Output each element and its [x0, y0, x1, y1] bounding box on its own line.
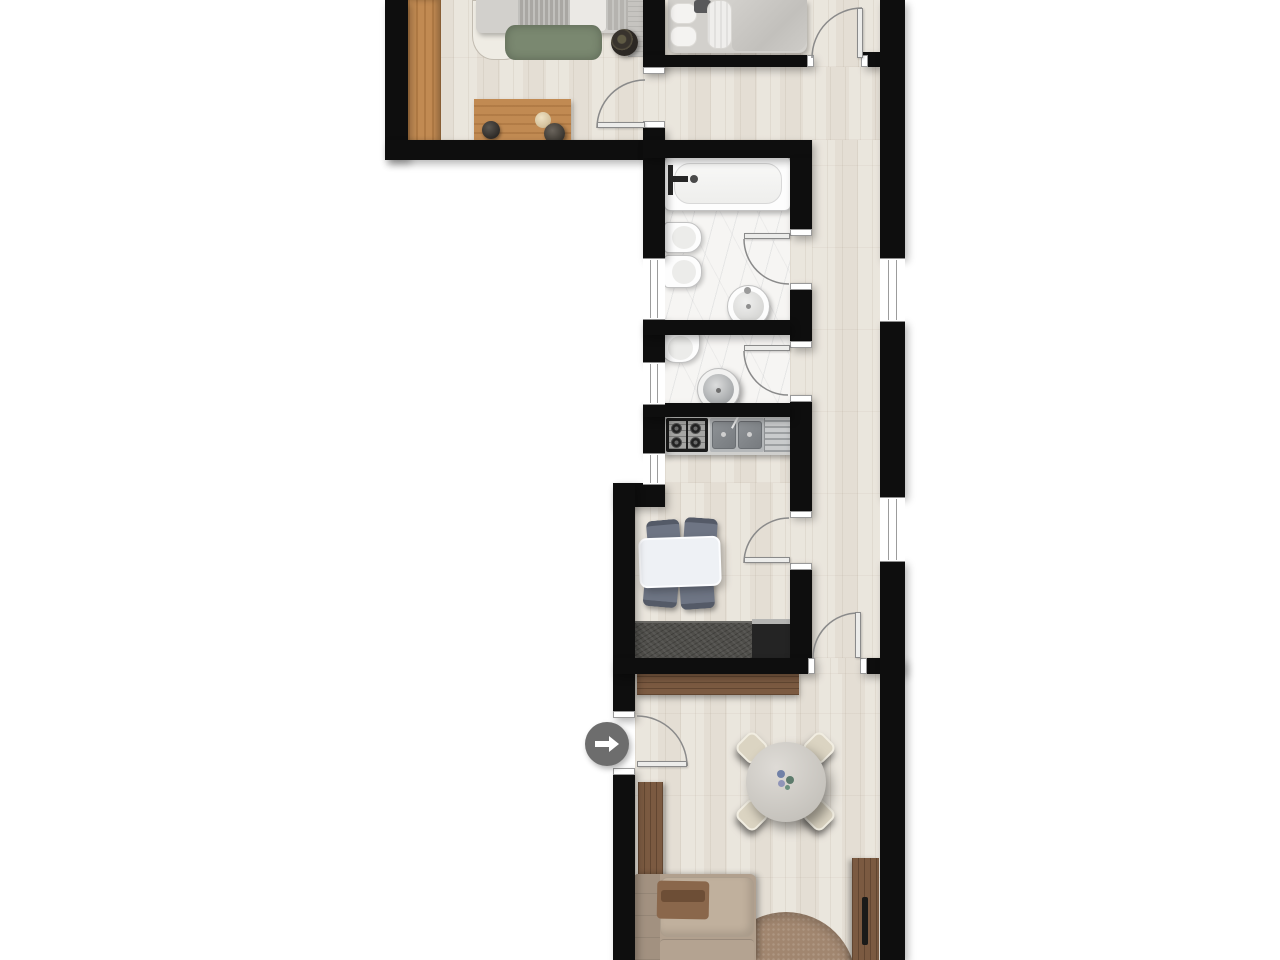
wall-bath-right-b: [790, 283, 812, 348]
jamb-bedroom1-bottom: [643, 121, 665, 128]
sofa-seat-cushion: [660, 939, 754, 960]
tall-cabinet: [638, 782, 663, 877]
floor-hall-upper: [665, 67, 880, 140]
dark-stone-counter: [635, 621, 752, 658]
burner-4: [690, 437, 701, 448]
wall-bedroom1-left: [385, 0, 408, 160]
bed2-pillow-top: [670, 3, 697, 24]
floor-patch-living-door: [815, 658, 860, 674]
bed2-duvet: [732, 0, 807, 51]
window-wc: [643, 362, 665, 405]
bathtub-basin: [674, 163, 782, 204]
dining-table: [638, 536, 722, 589]
jamb-living-left: [808, 658, 815, 674]
flower-mint: [785, 785, 790, 790]
sofa-back: [634, 874, 660, 960]
jamb-entrance-top: [613, 711, 635, 718]
bidet-bathroom-bowl: [672, 260, 696, 284]
floor-hallway: [812, 140, 880, 658]
floor-plan-canvas: [0, 0, 1280, 960]
pedestal-sink-wc-drain: [716, 388, 721, 393]
window-kitchen: [643, 453, 665, 485]
jamb-bathroom-bottom: [790, 283, 812, 290]
jamb-wc-bottom: [790, 395, 812, 402]
flower-lilac: [778, 780, 785, 787]
bed2-rolled-blanket: [707, 0, 732, 49]
bathtub-faucet-arm: [668, 176, 688, 182]
door-leaf-living: [855, 612, 861, 658]
flower-blue: [777, 770, 785, 778]
wall-bedroom1-bottom: [385, 140, 643, 160]
floor-patch-wc-door: [790, 348, 812, 395]
jamb-landing-left: [807, 55, 814, 67]
wall-wc-kitchen-divider: [643, 403, 790, 417]
wall-right-b: [880, 320, 905, 497]
black-appliance: [752, 619, 790, 658]
wall-right-a: [880, 0, 905, 258]
wall-bath-right-c: [790, 395, 812, 516]
window-hallway-upper: [880, 258, 905, 322]
wardrobe: [408, 0, 441, 142]
toilet-wc-bowl: [668, 336, 693, 360]
sink-drain-right: [747, 432, 752, 437]
door-leaf-landing: [857, 8, 863, 58]
door-leaf-bathroom: [744, 233, 790, 239]
sofa-throw-fold: [661, 890, 705, 902]
entry-marker: [585, 722, 629, 766]
pedestal-sink-bathroom-drain: [746, 304, 751, 309]
burner-2: [671, 437, 682, 448]
bed2-pillow-bottom: [670, 26, 697, 47]
toilet-bathroom-bowl: [672, 226, 696, 249]
sink-drain-left: [721, 432, 726, 437]
drainboard: [764, 418, 791, 452]
jamb-bedroom1-top: [643, 67, 665, 74]
wall-living-top-left: [613, 658, 815, 674]
floor-patch-dining-door: [790, 516, 812, 563]
jamb-dining-top: [790, 511, 812, 518]
wall-right-c: [880, 560, 905, 960]
jamb-living-right: [860, 658, 867, 674]
window-bathroom: [643, 258, 665, 320]
jamb-dining-bottom: [790, 563, 812, 570]
sideboard: [637, 673, 799, 695]
jamb-entrance-bottom: [613, 768, 635, 775]
wall-dining-left: [613, 483, 635, 718]
floor-patch-bathroom-door: [790, 236, 812, 283]
door-leaf-wc: [744, 345, 790, 351]
window-hallway-lower: [880, 497, 905, 562]
arrow-right-icon-head: [609, 736, 619, 752]
burner-1: [671, 423, 682, 434]
pedestal-sink-bathroom-tap: [744, 287, 751, 294]
door-leaf-bedroom1: [597, 122, 645, 128]
wall-bath-right-a: [790, 158, 812, 236]
arrow-right-icon: [595, 741, 610, 747]
floor-patch-landing-door: [813, 55, 862, 67]
jamb-bathroom-top: [790, 229, 812, 236]
wall-bathroom-top: [643, 140, 812, 158]
tv-icon: [862, 897, 868, 945]
floor-patch-bedroom1-door: [643, 73, 665, 127]
wall-bedroom2-bottom: [643, 55, 813, 67]
bathtub-drain-icon: [690, 175, 698, 183]
door-leaf-dining: [744, 557, 790, 563]
wall-bath-right-d: [790, 563, 812, 658]
wall-living-left: [613, 768, 635, 960]
bench-knob-dark: [482, 121, 500, 139]
green-rug: [505, 25, 602, 60]
wall-bath-wc-divider: [643, 320, 790, 335]
flower-green: [786, 776, 794, 784]
burner-3: [690, 423, 701, 434]
door-leaf-entrance: [637, 761, 687, 767]
jamb-wc-top: [790, 341, 812, 348]
round-pouf: [611, 29, 638, 56]
black-appliance-top: [752, 619, 790, 624]
